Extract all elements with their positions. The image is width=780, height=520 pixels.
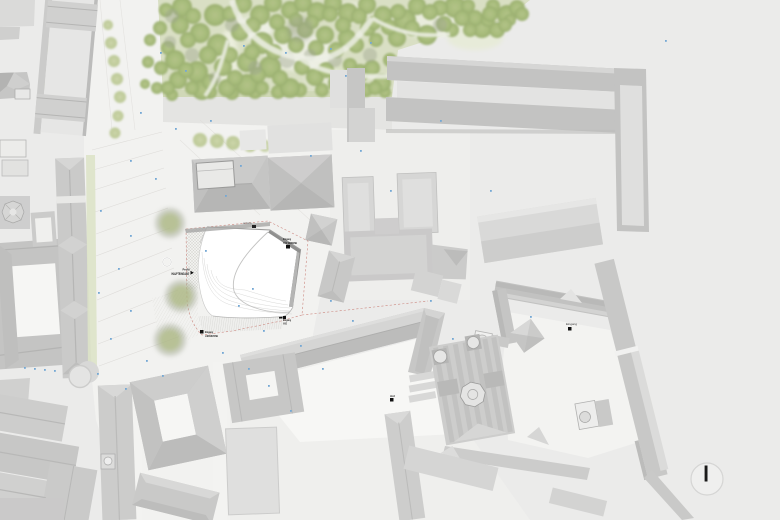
svg-text:Eingang: Eingang: [566, 322, 577, 326]
svg-text:anliefe: anliefe: [243, 221, 252, 225]
svg-text:UG: UG: [283, 322, 287, 326]
svg-text:Anl: Anl: [390, 394, 395, 398]
svg-text:LIEFERZONE: LIEFERZONE: [205, 334, 218, 338]
svg-text:HAUPTEINGANG: HAUPTEINGANG: [172, 272, 190, 276]
svg-text:TÜV VEREINE: TÜV VEREINE: [283, 240, 297, 245]
